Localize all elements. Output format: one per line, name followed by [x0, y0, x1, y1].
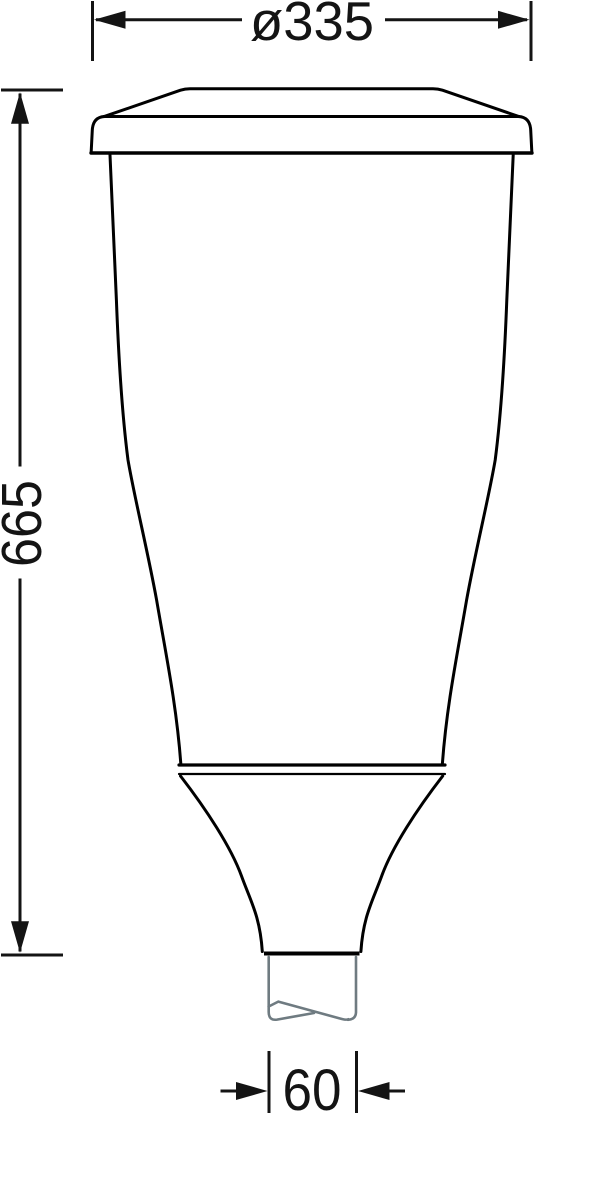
svg-text:60: 60 — [283, 1058, 342, 1123]
svg-text:ø335: ø335 — [250, 0, 374, 52]
svg-text:665: 665 — [0, 480, 54, 567]
